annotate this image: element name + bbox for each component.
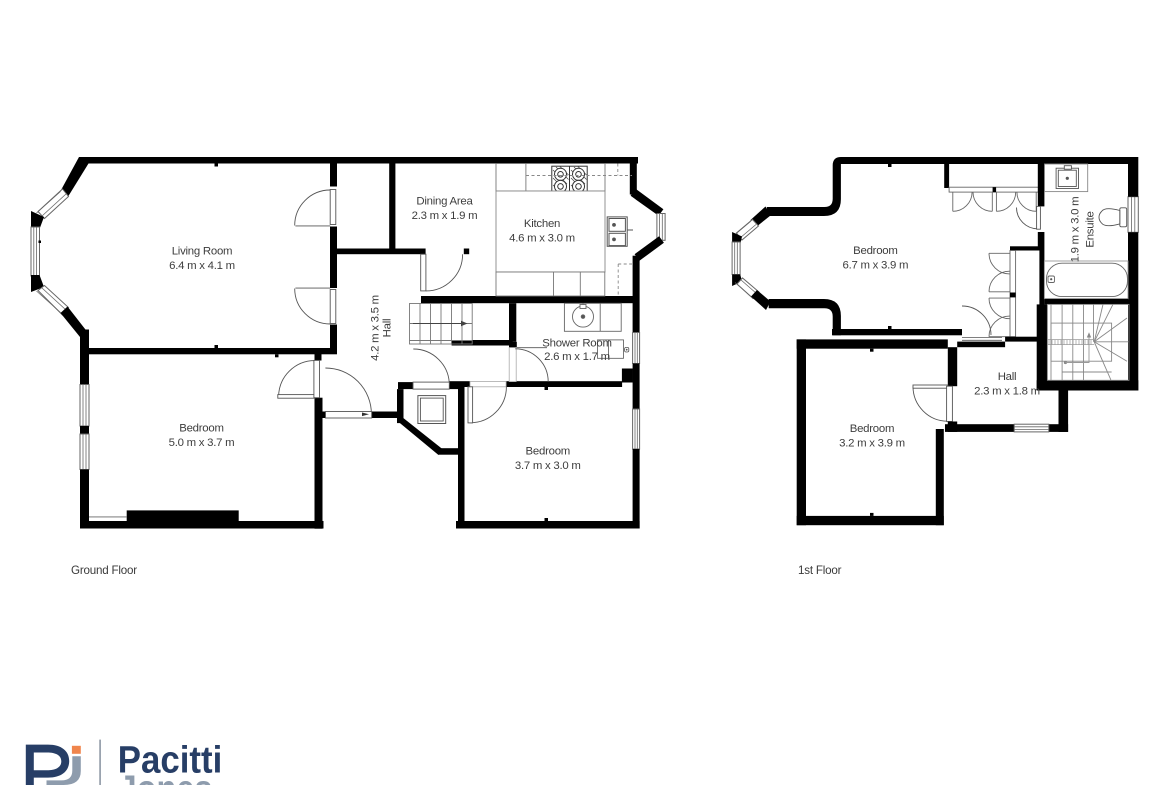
svg-text:Ground Floor: Ground Floor — [71, 564, 137, 577]
svg-text:Bedroom: Bedroom — [526, 446, 570, 458]
svg-text:Hall: Hall — [382, 319, 394, 338]
svg-text:2.6 m x 1.7 m: 2.6 m x 1.7 m — [544, 351, 610, 363]
svg-text:Kitchen: Kitchen — [524, 218, 560, 230]
svg-text:1.9 m x 3.0 m: 1.9 m x 3.0 m — [1070, 197, 1082, 263]
svg-text:2.3 m x 1.9 m: 2.3 m x 1.9 m — [412, 210, 478, 222]
svg-text:3.2 m x 3.9 m: 3.2 m x 3.9 m — [839, 437, 905, 449]
svg-text:3.7 m x 3.0 m: 3.7 m x 3.0 m — [515, 460, 581, 472]
svg-text:6.7 m x 3.9 m: 6.7 m x 3.9 m — [843, 260, 909, 272]
svg-text:4.6 m x 3.0 m: 4.6 m x 3.0 m — [509, 232, 575, 244]
svg-text:Shower Room: Shower Room — [542, 338, 611, 350]
svg-text:Dining Area: Dining Area — [416, 196, 473, 208]
svg-text:Bedroom: Bedroom — [853, 245, 897, 257]
svg-text:Ensuite: Ensuite — [1085, 211, 1097, 247]
svg-text:Hall: Hall — [998, 371, 1017, 383]
svg-text:5.0 m x 3.7 m: 5.0 m x 3.7 m — [169, 437, 235, 449]
svg-text:2.3 m x 1.8 m: 2.3 m x 1.8 m — [974, 385, 1040, 397]
svg-text:4.2 m x 3.5 m: 4.2 m x 3.5 m — [370, 295, 382, 361]
svg-text:Living Room: Living Room — [172, 246, 233, 258]
svg-text:Bedroom: Bedroom — [850, 423, 894, 435]
svg-text:6.4 m x 4.1 m: 6.4 m x 4.1 m — [169, 260, 235, 272]
svg-text:1st Floor: 1st Floor — [798, 564, 842, 577]
svg-text:Bedroom: Bedroom — [179, 423, 223, 435]
svg-text:Jones: Jones — [119, 769, 213, 785]
